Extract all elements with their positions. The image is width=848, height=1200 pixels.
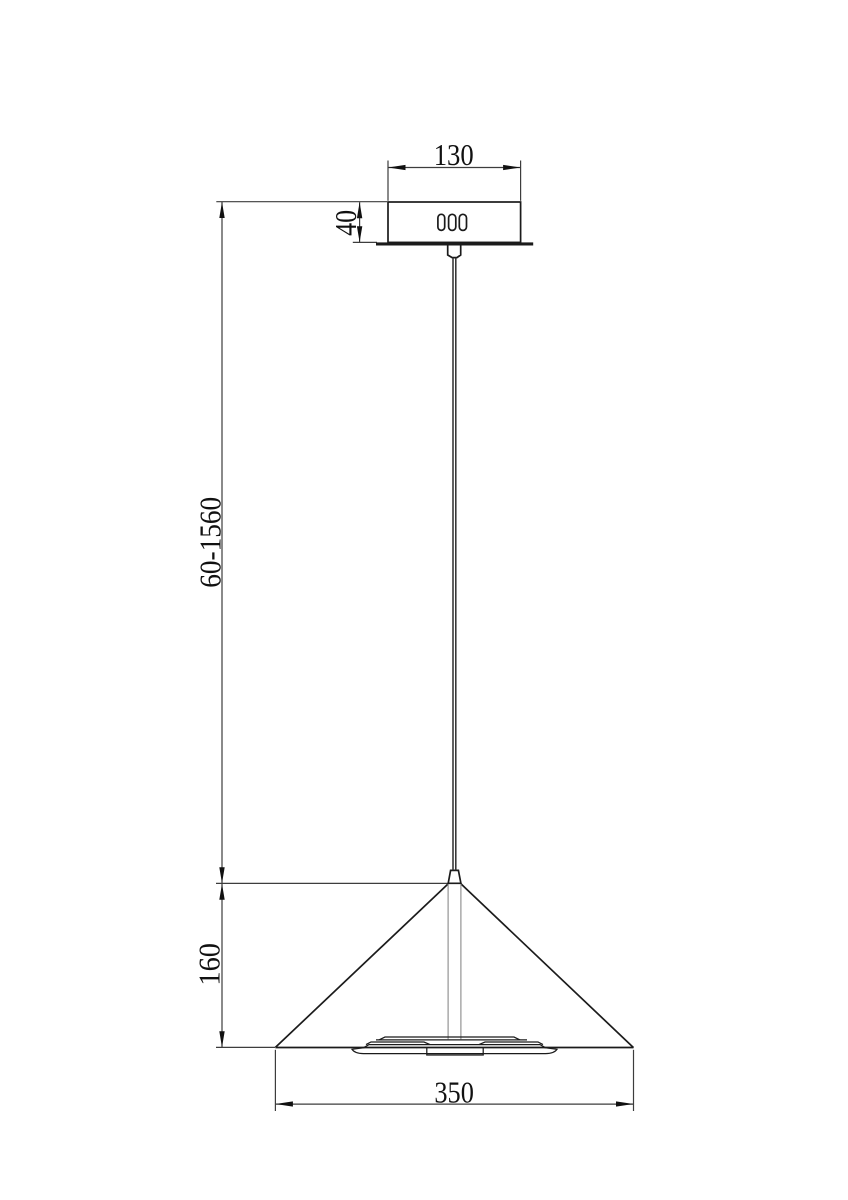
svg-text:350: 350 [434, 1075, 474, 1110]
svg-text:160: 160 [192, 943, 227, 986]
svg-text:130: 130 [434, 137, 474, 172]
svg-text:60-1560: 60-1560 [192, 497, 227, 588]
svg-text:40: 40 [328, 210, 363, 236]
